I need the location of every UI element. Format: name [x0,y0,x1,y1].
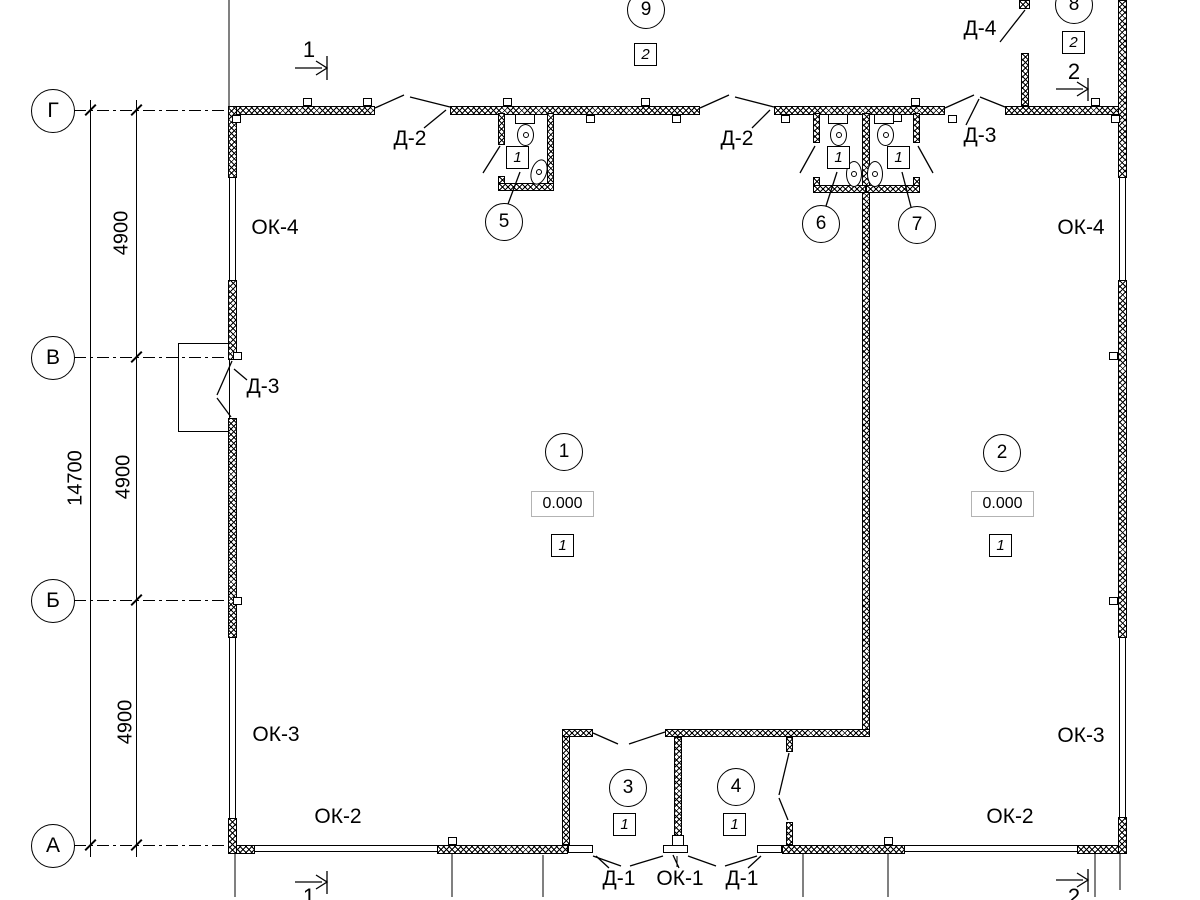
dim-bay-1: 4900 [111,188,134,278]
wall-tick [1111,115,1120,123]
section-1-top: 1 [303,37,315,63]
label-door-d3-top: Д-3 [964,124,997,148]
floor-value: 2 [641,46,649,63]
wall-tick [1091,98,1100,106]
floor-value: 1 [894,149,902,166]
room-number: 7 [912,214,923,236]
room-circle-7: 7 [898,206,936,244]
wall-left-2 [228,280,237,360]
wall-tick [884,837,893,845]
wall-right-1 [1118,0,1127,178]
label-window-ok2-right: ОК-2 [986,805,1033,829]
room-number: 9 [641,0,652,21]
label-door-d2-right: Д-2 [721,127,754,151]
room-circle-9: 9 [627,0,665,29]
room-circle-2: 2 [983,434,1021,472]
floor-mark-room4: 1 [723,813,746,836]
sink-dot-icon [535,168,543,176]
axis-circle-v: В [31,336,75,380]
label-window-ok4-left: ОК-4 [251,216,298,240]
axis-line-g [74,110,228,111]
wall-left-4 [228,818,237,854]
floor-mark-room7: 1 [887,146,910,169]
floor-value: 1 [513,149,521,166]
sink-dot-icon [872,171,878,177]
window-ok2-left [255,845,437,852]
wall-top-1 [228,106,375,115]
wall-tick [672,115,681,123]
vestibule4-door-leaf [779,753,789,820]
floor-value: 1 [996,537,1004,554]
toilet-tank-icon [828,114,848,124]
wall-tick [233,597,242,605]
floor-mark-room5: 1 [506,146,529,169]
door-threshold-d1-left [568,845,593,853]
room-number: 4 [731,776,742,798]
wall-tick [233,352,242,360]
level-value: 0.000 [542,495,582,513]
wall-wc7-bottom-stub [913,177,920,186]
label-window-ok2-left: ОК-2 [314,805,361,829]
room-circle-6: 6 [802,205,840,243]
wall-vestibule4-right-stub-bottom [786,822,793,845]
sink-dot-icon [851,171,857,177]
wall-wc5-right [547,113,554,190]
floor-value: 1 [730,816,738,833]
label-window-ok1: ОК-1 [656,867,703,891]
axis-label: В [46,346,60,370]
wall-vestibule3-left [562,729,570,845]
axis-label: Б [46,589,60,613]
level-value: 0.000 [982,495,1022,513]
label-door-d3-left: Д-3 [247,375,280,399]
wall-wc5-bottom [498,183,554,191]
room-number: 5 [499,211,510,233]
wall-tick [948,115,957,123]
room-circle-4: 4 [717,768,755,806]
window-ok1-sill [663,845,688,853]
floor-mark-room1: 1 [551,534,574,557]
axis-circle-g: Г [31,89,75,133]
wall-left-3 [228,418,237,638]
axis-circle-b: Б [31,579,75,623]
dim-bay-2: 4900 [113,432,136,522]
section-2-top: 2 [1068,59,1080,85]
room-number: 8 [1069,0,1080,16]
wall-tick [781,115,790,123]
wall-tick [911,98,920,106]
floor-value: 1 [834,149,842,166]
room-circle-3: 3 [609,769,647,807]
wall-top-2 [450,106,700,115]
floor-plan-drawing: Г В Б А 4900 4900 4900 14700 [0,0,1200,900]
room-number: 2 [997,442,1008,464]
wall-wc6-bottom-stub [813,177,820,186]
label-window-ok3-left: ОК-3 [252,723,299,747]
wall-wc6-bottom [813,185,866,193]
wall-right-3 [1118,817,1127,854]
floor-value: 1 [620,816,628,833]
wall-tick [1109,597,1118,605]
window-ok3-left [229,638,236,818]
axis-line-a [74,845,228,846]
section-1-bottom: 1 [303,884,315,900]
dimension-line-overall [90,100,91,857]
window-ok4-left [229,178,236,280]
axis-label: Г [47,99,58,123]
wall-porch-right [1021,53,1029,106]
toilet-bowl-icon [830,124,847,146]
floor-mark-room8: 2 [1062,31,1085,54]
level-mark-room1: 0.000 [531,491,594,517]
floor-mark-room2: 1 [989,534,1012,557]
window-ok4-right [1119,178,1126,280]
floor-mark-room3: 1 [613,813,636,836]
toilet-dot-icon [523,132,529,138]
wall-top-4 [1005,106,1127,115]
door-threshold-d1-right [757,845,782,853]
label-window-ok4-right: ОК-4 [1057,216,1104,240]
floor-mark-room6: 1 [827,146,850,169]
wall-tick [363,98,372,106]
wall-tick [893,114,902,122]
label-door-d2-left: Д-2 [394,127,427,151]
wall-porch-right-stub [1019,0,1030,9]
toilet-dot-icon [836,132,842,138]
sink-icon [867,161,883,187]
floor-mark-room9: 2 [634,43,657,66]
window-ok3-right [1119,638,1126,817]
section-marker-lines [295,56,1088,894]
toilet-bowl-icon [517,124,534,146]
toilet-tank-icon [515,114,535,124]
wall-tick [303,98,312,106]
room-circle-5: 5 [485,203,523,241]
room-circle-1: 1 [545,433,583,471]
axis-label: А [46,834,60,858]
floor-value: 1 [558,537,566,554]
door-opening-breaks-bottom [593,856,757,866]
wall-wc5-left [498,113,505,145]
label-door-d1-right: Д-1 [726,867,759,891]
wall-vestibule-divider [674,737,682,845]
wall-tick [232,115,241,123]
wall-wc7-right [913,113,920,143]
wall-tick [503,98,512,106]
dim-overall: 14700 [65,433,88,523]
axis-line-b [74,600,228,601]
wall-vestibule3-top [562,729,593,737]
wall-vestibule4-right-stub-top [786,737,793,752]
room-number: 3 [623,777,634,799]
label-door-d1-left: Д-1 [603,867,636,891]
room-number: 1 [559,441,570,463]
room-circle-8: 8 [1055,0,1093,24]
wall-wc6-left [813,113,820,143]
label-window-ok3-right: ОК-3 [1057,724,1104,748]
door-label-leaders [234,10,1025,380]
porch-outline-left [178,343,230,432]
wall-bottom-2 [437,845,568,854]
wall-tick [641,98,650,106]
wall-right-2 [1118,280,1127,638]
wall-vestibule4-top [665,729,870,737]
level-mark-room2: 0.000 [971,491,1034,517]
dim-bay-3: 4900 [115,677,138,767]
toilet-tank-icon [874,114,894,124]
label-door-d4: Д-4 [964,17,997,41]
toilet-bowl-icon [877,124,894,146]
vestibule3-opening-break [593,732,665,744]
room-number: 6 [816,213,827,235]
window-ok2-right [905,845,1077,852]
window-ok1-frame [672,835,684,846]
wall-tick [586,115,595,123]
wall-tick [1109,352,1118,360]
wall-divider-rooms-1-2 [862,113,870,737]
toilet-dot-icon [883,132,889,138]
section-2-bottom: 2 [1068,884,1080,900]
wall-wc5-bottom-stub [498,176,505,184]
axis-circle-a: А [31,824,75,868]
floor-value: 2 [1069,34,1077,51]
wall-tick [448,837,457,845]
wall-bottom-3 [782,845,905,854]
